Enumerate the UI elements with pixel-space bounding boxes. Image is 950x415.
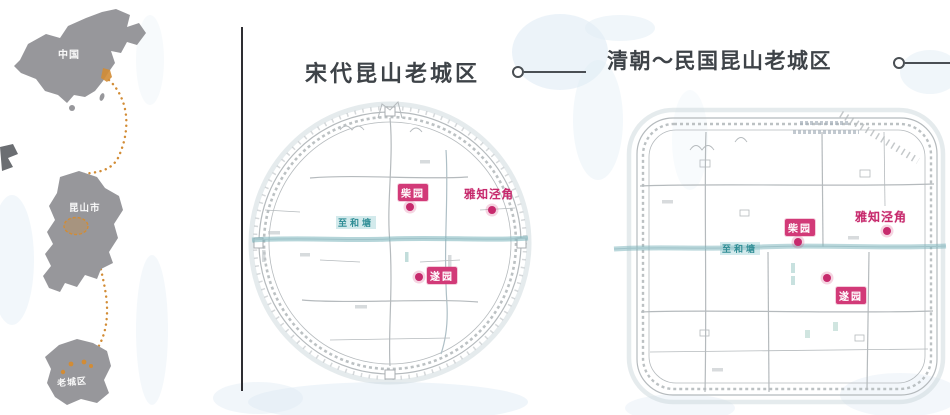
song-title-connector (512, 66, 586, 78)
oldtown-label: 老城区 (56, 374, 87, 390)
line-ornament (905, 62, 950, 64)
qing-canal-label: 至和塘 (720, 242, 760, 255)
qing-marker-sui-dot (823, 274, 831, 282)
figure-kunshan-historic-maps: 中国 昆山市 老城区 宋代昆山老城区 清朝～民国昆山老城区 至和塘 柴园 雅知泾… (0, 0, 950, 415)
line-ornament (524, 71, 586, 73)
song-city-sketch (251, 102, 529, 382)
province-label: 昆山市 (69, 200, 101, 214)
song-marker-sui-dot (415, 273, 423, 281)
qing-marker-chai-garden: 柴园 (785, 219, 815, 236)
song-marker-chai-dot (406, 203, 414, 211)
song-marker-corner: 雅知泾角 (464, 186, 514, 202)
song-tiny-street-names (262, 160, 452, 309)
qing-canal (614, 246, 946, 249)
song-marker-chai-garden: 柴园 (398, 184, 428, 201)
faint-annotation-line (793, 130, 859, 134)
qing-marker-sui-garden: 遂园 (836, 287, 866, 304)
qing-marker-chai-dot (794, 238, 802, 246)
faint-annotation-line (800, 121, 850, 125)
song-canal (252, 238, 528, 240)
province-map (43, 171, 123, 292)
oldtown-map (45, 339, 111, 405)
qing-title-connector (893, 57, 950, 69)
panel-divider-rule (241, 27, 243, 391)
qing-marker-corner: 雅知泾角 (855, 208, 907, 225)
qing-map-title: 清朝～民国昆山老城区 (607, 45, 832, 75)
edge-map-fragment (0, 144, 18, 171)
circle-ornament-icon (512, 66, 524, 78)
china-label: 中国 (58, 46, 80, 61)
china-map (14, 9, 146, 111)
song-map-title: 宋代昆山老城区 (305, 56, 480, 88)
circle-ornament-icon (893, 57, 905, 69)
province-highlight-ring (64, 218, 88, 235)
song-marker-corner-dot (488, 206, 496, 214)
qing-marker-corner-dot (883, 227, 891, 235)
qing-tiny-street-names (662, 200, 859, 372)
song-marker-sui-garden: 遂园 (427, 267, 457, 284)
song-canal-label: 至和塘 (336, 216, 376, 229)
